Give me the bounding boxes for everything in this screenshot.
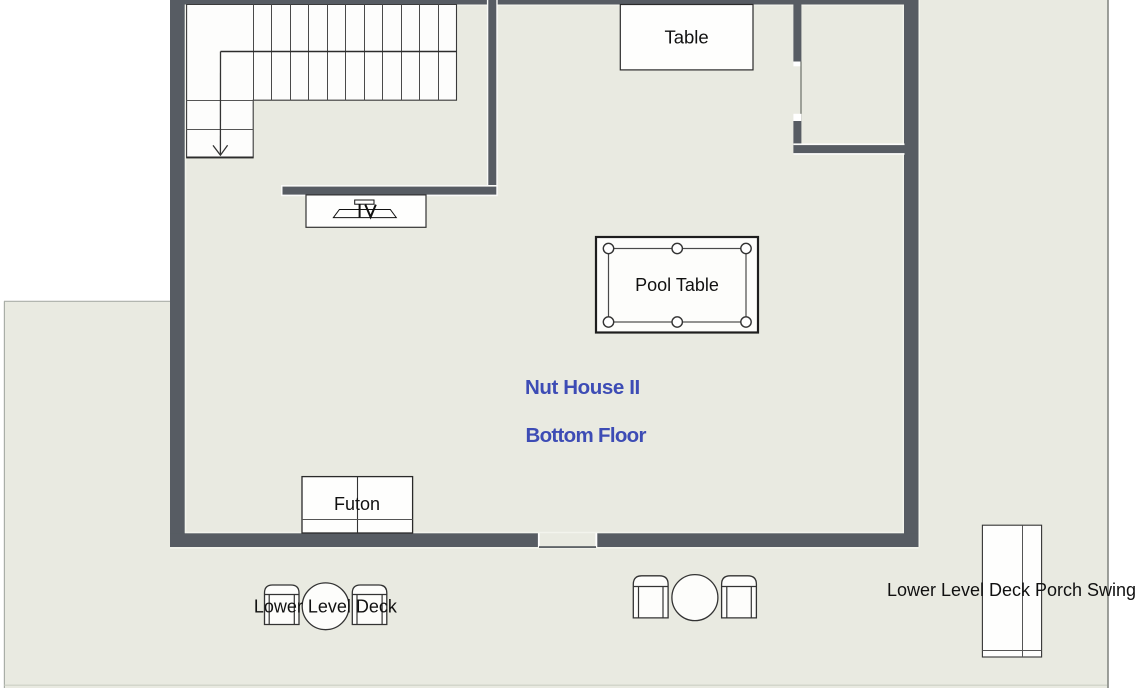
svg-text:Lower Level Deck: Lower Level Deck (254, 596, 398, 616)
svg-text:Pool Table: Pool Table (635, 275, 719, 295)
svg-text:Table: Table (664, 27, 708, 48)
svg-text:Bottom Floor: Bottom Floor (526, 424, 647, 447)
svg-text:Futon: Futon (334, 494, 380, 514)
svg-text:Nut House II: Nut House II (525, 376, 640, 399)
svg-text:Lower Level Deck Porch Swing: Lower Level Deck Porch Swing (887, 580, 1136, 600)
